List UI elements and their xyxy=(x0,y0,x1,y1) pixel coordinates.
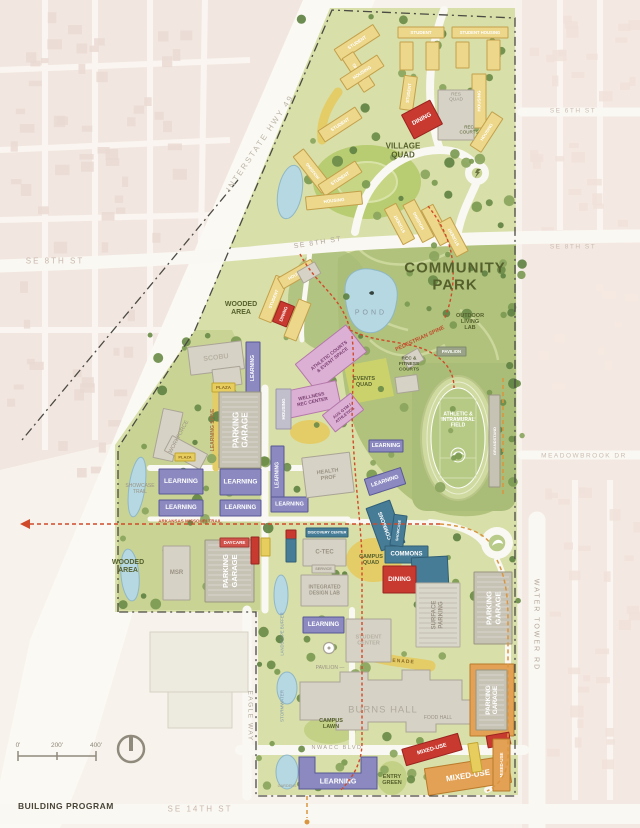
house xyxy=(11,141,18,151)
house xyxy=(539,351,549,361)
house xyxy=(57,117,68,125)
tree xyxy=(304,636,311,643)
tree xyxy=(390,750,398,758)
house xyxy=(568,189,581,195)
tree xyxy=(119,600,128,609)
house xyxy=(54,242,67,254)
tree xyxy=(405,301,410,306)
yellow-sliver[interactable] xyxy=(261,538,270,556)
tree xyxy=(336,763,345,772)
tree xyxy=(362,180,371,189)
campus-master-plan: { "colors":{ "background":"#f7f3ec","cam… xyxy=(0,0,640,828)
house xyxy=(94,38,105,45)
house xyxy=(577,719,583,728)
health-prof[interactable]: HEALTHPROF xyxy=(302,452,355,498)
msr-building[interactable]: MSR xyxy=(163,546,190,600)
tree xyxy=(448,428,453,433)
house xyxy=(579,488,592,499)
tree xyxy=(482,270,488,276)
tree xyxy=(506,362,513,369)
tree xyxy=(469,159,474,164)
house xyxy=(68,25,82,34)
house xyxy=(122,176,128,187)
tree xyxy=(517,271,525,279)
house xyxy=(26,52,36,62)
house xyxy=(575,737,582,747)
learning-c1[interactable]: LEARNING xyxy=(271,446,284,504)
grandstand[interactable]: GRANDSTAND xyxy=(489,395,500,487)
house xyxy=(144,97,151,106)
tree xyxy=(406,270,413,277)
house xyxy=(106,158,120,166)
integrated-design-lab[interactable]: INTEGRATEDDESIGN LAB xyxy=(301,575,348,606)
house xyxy=(79,154,93,160)
house xyxy=(124,347,133,358)
house xyxy=(596,284,604,292)
house xyxy=(558,50,566,57)
house xyxy=(90,46,99,52)
tree xyxy=(507,309,515,317)
tree xyxy=(450,149,460,159)
housing-bar-3[interactable]: STUDENT xyxy=(398,27,444,38)
house xyxy=(546,55,554,63)
tree xyxy=(453,533,461,541)
house xyxy=(21,184,31,196)
tree xyxy=(439,652,447,660)
house xyxy=(592,193,602,205)
map-canvas: PROMENADE STUDENTHOUSINGSTUDENTSTUDENT H… xyxy=(0,0,640,828)
house xyxy=(163,121,172,132)
house xyxy=(173,169,187,180)
house xyxy=(602,760,614,770)
house xyxy=(29,81,42,87)
house xyxy=(599,91,613,101)
house xyxy=(11,179,22,184)
house xyxy=(41,58,49,63)
house xyxy=(596,677,610,683)
bioswale-3 xyxy=(276,755,298,789)
tree xyxy=(443,310,451,318)
tree xyxy=(343,293,350,300)
service-tag[interactable]: SERVICE xyxy=(312,565,335,573)
tree xyxy=(207,454,216,463)
house xyxy=(99,443,106,453)
house xyxy=(606,739,615,745)
house xyxy=(554,334,565,343)
house xyxy=(127,117,135,126)
house xyxy=(82,126,92,132)
athletic-track xyxy=(421,376,495,500)
house xyxy=(20,281,28,293)
house xyxy=(7,399,15,407)
tree xyxy=(472,202,483,213)
tree xyxy=(517,259,526,268)
tree xyxy=(141,593,147,599)
tree xyxy=(431,242,437,248)
house xyxy=(571,72,584,78)
house xyxy=(618,220,628,227)
tree xyxy=(373,212,381,220)
house xyxy=(545,488,552,499)
tree xyxy=(486,199,493,206)
tree xyxy=(120,536,126,542)
tree xyxy=(450,321,458,329)
learning-a1[interactable]: LEARNING xyxy=(159,469,203,494)
house xyxy=(602,291,617,299)
daycare[interactable]: DAYCARE xyxy=(220,538,249,547)
house xyxy=(568,668,581,675)
tree xyxy=(310,138,316,144)
tree xyxy=(382,732,391,741)
tree xyxy=(400,403,409,412)
house xyxy=(16,109,25,114)
house xyxy=(595,649,609,655)
house xyxy=(14,385,24,390)
house xyxy=(569,143,579,148)
housing-bar-4[interactable] xyxy=(400,42,413,70)
house xyxy=(152,233,160,243)
tree xyxy=(515,598,521,604)
learning-c2[interactable]: LEARNING xyxy=(271,497,308,512)
learning-b2[interactable]: LEARNING xyxy=(220,500,261,516)
house xyxy=(47,39,62,49)
tree xyxy=(332,156,343,167)
house xyxy=(558,499,570,505)
pavilion-park-tag[interactable]: PAVILION xyxy=(437,347,466,356)
house xyxy=(134,105,145,113)
house xyxy=(173,49,181,61)
house xyxy=(604,571,611,582)
tree xyxy=(390,154,396,160)
house xyxy=(552,76,559,87)
house xyxy=(610,509,621,520)
red-sliver[interactable] xyxy=(251,537,259,564)
house xyxy=(77,44,88,54)
house xyxy=(598,347,605,355)
tree xyxy=(444,157,454,167)
tree xyxy=(314,422,320,428)
tree xyxy=(444,191,452,199)
tree xyxy=(349,146,357,154)
tree xyxy=(194,404,201,411)
learning-north[interactable]: LEARNING xyxy=(246,342,260,394)
house xyxy=(628,20,640,30)
tree xyxy=(429,251,439,261)
house xyxy=(583,675,590,681)
housing-bar-5[interactable] xyxy=(426,42,439,70)
tree xyxy=(475,154,486,165)
tree xyxy=(157,386,167,396)
tree xyxy=(150,599,161,610)
house xyxy=(48,12,57,23)
discovery-center[interactable]: DISCOVERY CENTER xyxy=(306,528,348,537)
tree xyxy=(509,436,516,443)
tree xyxy=(294,486,301,493)
tree xyxy=(401,651,407,657)
parking-garage-east[interactable]: PARKINGGARAGE xyxy=(474,572,512,644)
tree xyxy=(498,222,504,228)
house xyxy=(564,542,573,549)
house xyxy=(625,294,639,302)
housing-bar-8[interactable] xyxy=(487,40,500,70)
tree xyxy=(188,520,194,526)
dining-commons[interactable]: DINING xyxy=(383,566,416,593)
tree xyxy=(298,746,305,753)
commons-3[interactable] xyxy=(411,556,448,585)
house xyxy=(115,196,123,203)
house xyxy=(102,212,115,221)
tree xyxy=(451,455,456,460)
tree xyxy=(378,386,384,392)
tree xyxy=(500,312,506,318)
housing-bar-6[interactable]: STUDENT HOUSING xyxy=(452,27,508,38)
house xyxy=(578,546,591,552)
pavilion-gazebo-center xyxy=(328,647,331,650)
bioswale-2 xyxy=(277,672,297,704)
tree xyxy=(372,132,381,141)
tree xyxy=(306,653,315,662)
house xyxy=(624,555,634,561)
house xyxy=(605,361,612,370)
tree xyxy=(370,460,376,466)
house xyxy=(162,56,172,67)
house xyxy=(102,242,109,252)
tree xyxy=(205,333,211,339)
tree xyxy=(153,353,163,363)
house xyxy=(547,749,560,757)
house xyxy=(114,348,120,356)
tree xyxy=(462,309,473,320)
student-center[interactable]: STUDENTCENTER xyxy=(346,619,391,662)
learning-d1[interactable]: LEARNING xyxy=(369,440,403,452)
house xyxy=(98,147,110,154)
tree xyxy=(148,333,153,338)
house xyxy=(620,82,630,90)
learning-b1[interactable]: LEARNING xyxy=(220,469,261,495)
tree xyxy=(274,669,280,675)
tree xyxy=(192,440,197,445)
entry-green-area xyxy=(377,761,407,795)
house xyxy=(586,54,597,60)
house xyxy=(154,112,163,120)
trail-endpoint-dot xyxy=(305,820,310,825)
house xyxy=(158,31,169,41)
tree xyxy=(276,635,284,643)
house xyxy=(116,208,125,214)
tree xyxy=(407,775,415,783)
house xyxy=(58,441,68,451)
house xyxy=(81,162,94,172)
tree xyxy=(297,15,306,24)
wellness-plaza-area xyxy=(290,420,330,444)
c-tec[interactable]: C-TEC xyxy=(303,539,346,566)
housing-vert-wellness[interactable]: HOUSING xyxy=(276,389,291,429)
house xyxy=(550,612,562,617)
house xyxy=(91,467,101,474)
house xyxy=(180,31,192,41)
blue-sliver[interactable] xyxy=(286,539,296,562)
tree xyxy=(203,486,209,492)
tree xyxy=(421,170,431,180)
house xyxy=(619,620,631,630)
parking-garage-west[interactable]: PARKINGGARAGE xyxy=(205,540,254,602)
house xyxy=(128,310,135,322)
parking-garage-central[interactable]: PARKINGGARAGE xyxy=(219,392,261,468)
surface-parking[interactable]: SURFACEPARKING xyxy=(416,583,460,647)
tree xyxy=(267,661,276,670)
house xyxy=(569,571,580,581)
tree xyxy=(486,74,493,81)
bioswale-1 xyxy=(274,575,288,615)
tree xyxy=(208,416,215,423)
red-cap[interactable] xyxy=(286,530,296,539)
house xyxy=(615,37,627,43)
learning-a2[interactable]: LEARNING xyxy=(159,500,203,516)
tree xyxy=(182,337,191,346)
house xyxy=(571,152,585,163)
res-quad-building[interactable] xyxy=(438,90,474,140)
tree xyxy=(360,103,369,112)
tree xyxy=(450,406,456,412)
house xyxy=(114,389,127,396)
tree xyxy=(508,477,518,487)
house xyxy=(633,522,640,533)
house xyxy=(77,468,87,478)
house xyxy=(96,72,107,82)
house xyxy=(82,377,94,387)
tree xyxy=(141,444,147,450)
tree xyxy=(257,662,262,667)
tree xyxy=(258,627,268,637)
house xyxy=(168,144,182,151)
tree xyxy=(399,15,408,24)
house xyxy=(79,64,86,74)
plaza-tag-1[interactable]: PLAZA xyxy=(212,383,235,392)
house xyxy=(578,687,590,693)
house xyxy=(38,206,49,214)
tree xyxy=(432,180,438,186)
tree xyxy=(435,482,446,493)
tree xyxy=(256,755,262,761)
tree xyxy=(269,741,274,746)
house xyxy=(24,320,30,329)
house xyxy=(629,612,640,621)
house xyxy=(55,165,70,176)
tree xyxy=(378,772,383,777)
tree xyxy=(445,252,451,258)
house xyxy=(629,77,635,86)
house xyxy=(555,156,564,161)
tree xyxy=(388,452,394,458)
house xyxy=(27,359,35,364)
tree xyxy=(263,781,271,789)
tree xyxy=(499,259,507,267)
house xyxy=(566,26,579,38)
tree xyxy=(468,266,474,272)
learning-e[interactable]: LEARNING xyxy=(303,617,344,633)
house xyxy=(530,150,539,162)
house xyxy=(530,48,540,56)
tree xyxy=(519,433,524,438)
tree xyxy=(504,195,515,206)
house xyxy=(587,179,602,186)
plaza-tag-2[interactable]: PLAZA xyxy=(175,453,195,461)
parking-garage-south[interactable]: PARKINGGARAGE xyxy=(476,670,507,730)
house xyxy=(579,203,588,211)
house xyxy=(20,124,35,133)
house xyxy=(605,728,614,737)
rec-court-2[interactable] xyxy=(395,375,419,394)
tree xyxy=(428,275,438,285)
tree xyxy=(142,507,149,514)
house xyxy=(615,322,623,327)
house xyxy=(552,383,566,389)
tree xyxy=(368,14,373,19)
tree xyxy=(398,196,403,201)
housing-bar-7[interactable] xyxy=(456,42,469,68)
house xyxy=(570,706,583,718)
tree xyxy=(426,306,431,311)
